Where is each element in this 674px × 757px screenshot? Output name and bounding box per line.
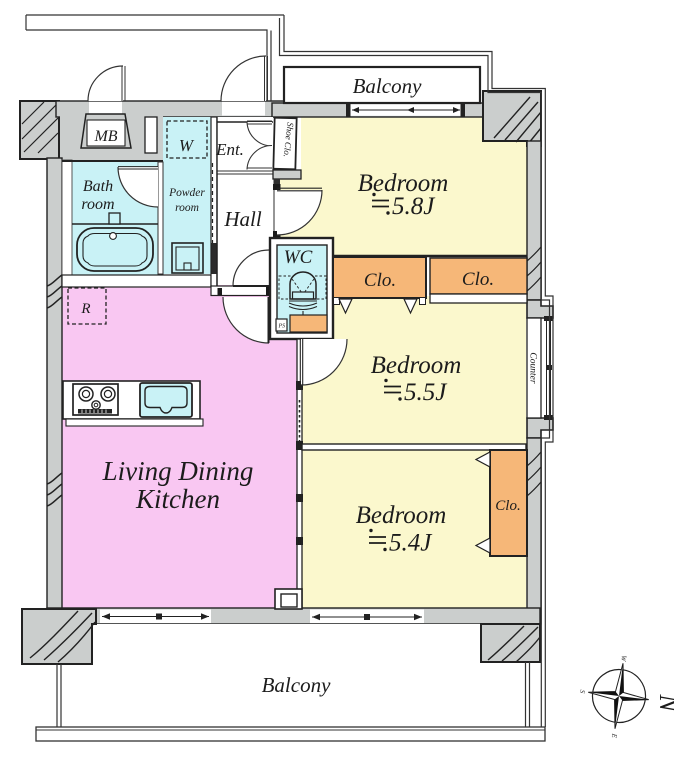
svg-text:MB: MB: [93, 128, 117, 145]
svg-text:Balcony: Balcony: [262, 673, 331, 697]
svg-text:Balcony: Balcony: [353, 74, 422, 98]
svg-text:room: room: [175, 202, 199, 214]
svg-text:N: N: [654, 693, 674, 713]
svg-text:PS: PS: [278, 324, 286, 330]
svg-text:Ent.: Ent.: [215, 140, 244, 159]
svg-text:Bedroom: Bedroom: [356, 502, 447, 529]
svg-text:Powder: Powder: [168, 187, 205, 199]
svg-text:W: W: [179, 136, 195, 155]
svg-text:Clo.: Clo.: [364, 270, 396, 291]
svg-text:Bedroom: Bedroom: [371, 352, 462, 379]
svg-text:Counter: Counter: [528, 352, 538, 383]
svg-text:Kitchen: Kitchen: [135, 484, 220, 514]
svg-text:5.5J: 5.5J: [404, 379, 448, 406]
svg-text:Clo.: Clo.: [462, 269, 494, 290]
svg-text:Clo.: Clo.: [495, 498, 520, 514]
svg-text:Hall: Hall: [223, 207, 262, 231]
svg-text:Bath: Bath: [83, 178, 113, 195]
svg-text:5.8J: 5.8J: [392, 193, 436, 220]
svg-text:5.4J: 5.4J: [389, 530, 433, 557]
svg-text:R: R: [80, 301, 90, 317]
svg-text:WC: WC: [284, 247, 313, 268]
svg-text:room: room: [81, 196, 114, 213]
svg-text:Living Dining: Living Dining: [102, 456, 254, 486]
